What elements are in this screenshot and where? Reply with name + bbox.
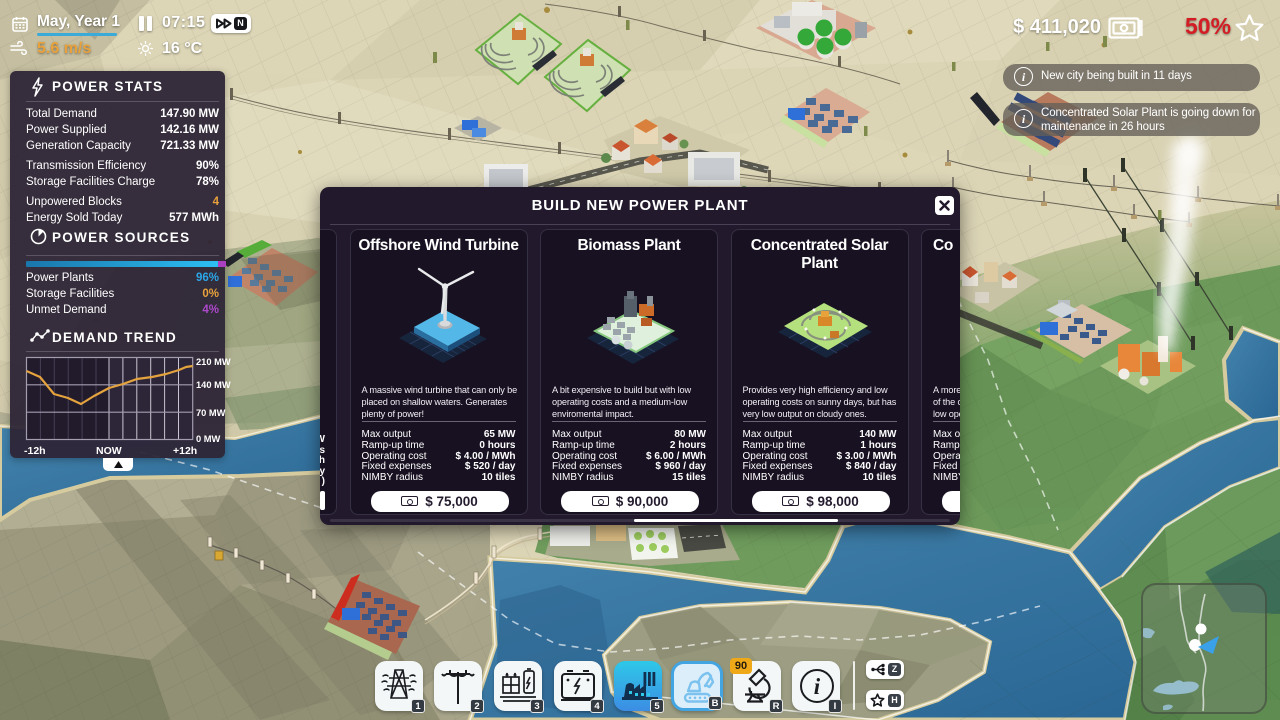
svg-text:i: i	[814, 674, 821, 699]
